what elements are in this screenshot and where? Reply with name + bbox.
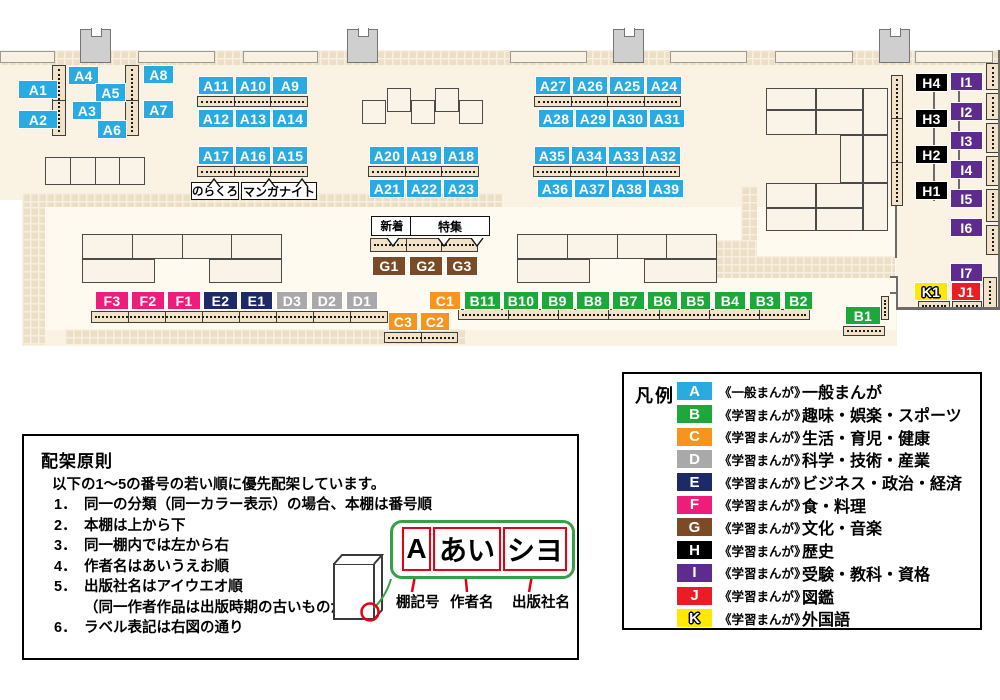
shelving-rule-note: （同一作者作品は出版時期の古いものが先） bbox=[54, 598, 432, 619]
legend-item-h: H《学習まんが》歴史 bbox=[677, 539, 978, 562]
legend-chip-b: B bbox=[677, 405, 712, 423]
shelf-label-a38: A38 bbox=[611, 179, 647, 198]
legend-series: 《学習まんが》 bbox=[719, 541, 802, 560]
shelving-rule: 5．出版社名はアイウエオ順 bbox=[54, 577, 432, 598]
shelf-label-i4: I4 bbox=[950, 160, 983, 179]
shelf-label-a24: A24 bbox=[646, 76, 682, 95]
display-table bbox=[863, 135, 888, 183]
legend-item-k: K《学習まんが》外国語 bbox=[677, 607, 978, 630]
shelf-label-a16: A16 bbox=[235, 146, 271, 165]
shelf-label-b10: B10 bbox=[503, 291, 539, 310]
shelf-label-a2: A2 bbox=[18, 110, 58, 129]
legend-item-j: J《学習まんが》図鑑 bbox=[677, 584, 978, 607]
legend-items: A《一般まんが》一般まんがB《学習まんが》趣味・娯楽・スポーツC《学習まんが》生… bbox=[677, 380, 978, 630]
pillar bbox=[879, 29, 910, 63]
shelving-rule: 1．同一の分類（同一カラー表示）の場合、本棚は番号順 bbox=[54, 495, 432, 516]
legend-item-f: F《学習まんが》食・料理 bbox=[677, 493, 978, 516]
floor-map-page: { "colors": { "A": "#29abe2", "B": "#1ea… bbox=[0, 0, 1000, 700]
shelf-label-a36: A36 bbox=[537, 179, 573, 198]
legend-chip-g: G bbox=[677, 518, 712, 536]
wall-shelf bbox=[243, 51, 318, 63]
principles-box: 配架原則 以下の1～5の番号の若い順に優先配架しています。 1．同一の分類（同一… bbox=[22, 434, 579, 660]
shelf-label-f2: F2 bbox=[131, 291, 165, 310]
display-table bbox=[209, 259, 282, 283]
callout-pointer bbox=[262, 174, 276, 183]
shelf-label-f3: F3 bbox=[95, 291, 129, 310]
shelf-label-a15: A15 bbox=[272, 146, 308, 165]
legend-series: 《学習まんが》 bbox=[719, 495, 802, 514]
legend-chip-c: C bbox=[677, 428, 712, 446]
shelf-label-b11: B11 bbox=[464, 291, 501, 310]
legend-box: 凡例 A《一般まんが》一般まんがB《学習まんが》趣味・娯楽・スポーツC《学習まん… bbox=[622, 372, 982, 630]
display-table bbox=[411, 100, 435, 124]
display-table bbox=[517, 259, 590, 283]
shelf-label-a7: A7 bbox=[143, 100, 174, 119]
legend-category: 歴史 bbox=[802, 538, 834, 562]
callout-pointer bbox=[470, 234, 484, 243]
bookshelf bbox=[384, 332, 458, 343]
shelving-rule: 3．同一棚内では左から右 bbox=[54, 536, 432, 557]
shelf-label-a28: A28 bbox=[538, 109, 574, 128]
legend-chip-e: E bbox=[677, 473, 712, 491]
principles-title: 配架原則 bbox=[41, 447, 113, 472]
callout-pointer bbox=[437, 234, 451, 243]
legend-item-i: I《学習まんが》受験・教科・資格 bbox=[677, 562, 978, 585]
legend-item-a: A《一般まんが》一般まんが bbox=[677, 380, 978, 403]
caption-author: 作者名 bbox=[450, 591, 494, 612]
shelf-label-a12: A12 bbox=[198, 109, 234, 128]
legend-category: ビジネス・政治・経済 bbox=[802, 470, 962, 494]
shelf-label-a19: A19 bbox=[406, 146, 442, 165]
display-table bbox=[766, 88, 816, 110]
shelf-label-a31: A31 bbox=[649, 109, 685, 128]
bookshelf bbox=[197, 96, 308, 107]
display-table bbox=[816, 110, 863, 135]
legend-category: 生活・育児・健康 bbox=[802, 425, 930, 449]
legend-item-g: G《学習まんが》文化・音楽 bbox=[677, 516, 978, 539]
shelf-label-i2: I2 bbox=[950, 102, 983, 121]
shelf-label-d1: D1 bbox=[346, 291, 378, 310]
shelf-label-a1: A1 bbox=[18, 80, 58, 99]
shelf-label-e2: E2 bbox=[203, 291, 238, 310]
shelf-label-a30: A30 bbox=[612, 109, 648, 128]
wall-shelf bbox=[138, 51, 215, 63]
display-table bbox=[816, 88, 863, 110]
bookshelf bbox=[983, 277, 997, 308]
pillar bbox=[613, 29, 644, 63]
bookshelf bbox=[534, 96, 681, 107]
shelf-label-g2: G2 bbox=[409, 256, 443, 276]
legend-chip-k: K bbox=[677, 609, 712, 627]
floor-map: A1A4A8A5A3A7A2A6A11A10A9A12A13A14A17A16A… bbox=[0, 0, 1000, 360]
shelf-label-a26: A26 bbox=[572, 76, 608, 95]
shelf-label-a3: A3 bbox=[72, 101, 102, 120]
legend-series: 《学習まんが》 bbox=[719, 450, 802, 469]
shelf-label-a39: A39 bbox=[648, 179, 684, 198]
pillar bbox=[347, 29, 378, 63]
shelf-label-h1: H1 bbox=[915, 181, 948, 200]
display-table bbox=[863, 183, 888, 231]
legend-category: 食・料理 bbox=[802, 493, 866, 517]
principles-rules: 1．同一の分類（同一カラー表示）の場合、本棚は番号順2．本棚は上から下3．同一棚… bbox=[54, 495, 432, 639]
shelf-label-i3: I3 bbox=[950, 131, 983, 150]
shelf-label-b8: B8 bbox=[576, 291, 610, 310]
shelf-label-a34: A34 bbox=[571, 146, 607, 165]
shelf-label-b5: B5 bbox=[680, 291, 711, 310]
floor-area bbox=[0, 200, 22, 348]
carpet-band bbox=[741, 186, 757, 240]
wall-shelf bbox=[0, 51, 55, 63]
label-diagram-shelf-code: A bbox=[402, 527, 431, 571]
bookshelf bbox=[533, 166, 680, 177]
legend-item-c: C《学習まんが》生活・育児・健康 bbox=[677, 425, 978, 448]
shelf-label-i7: I7 bbox=[950, 263, 983, 282]
legend-category: 趣味・娯楽・スポーツ bbox=[802, 402, 962, 426]
display-table bbox=[816, 208, 863, 231]
shelf-label-k1: K1 bbox=[914, 282, 948, 301]
wall-line bbox=[896, 307, 1000, 310]
legend-chip-d: D bbox=[677, 450, 712, 468]
legend-chip-j: J bbox=[677, 587, 712, 605]
shelf-label-a27: A27 bbox=[535, 76, 571, 95]
shelf-label-a22: A22 bbox=[406, 179, 442, 198]
shelf-label-a10: A10 bbox=[235, 76, 271, 95]
legend-category: 外国語 bbox=[802, 606, 850, 630]
wall-line bbox=[890, 292, 898, 294]
legend-item-d: D《学習まんが》科学・技術・産業 bbox=[677, 448, 978, 471]
shelf-label-a20: A20 bbox=[369, 146, 405, 165]
shelf-label-b6: B6 bbox=[647, 291, 678, 310]
shelf-label-h4: H4 bbox=[915, 73, 948, 92]
display-table bbox=[82, 234, 282, 259]
shelf-label-a33: A33 bbox=[608, 146, 644, 165]
legend-category: 図鑑 bbox=[802, 584, 834, 608]
shelf-label-a14: A14 bbox=[272, 109, 308, 128]
shelf-label-b2: B2 bbox=[784, 291, 813, 310]
wall-shelf bbox=[510, 51, 587, 63]
shelf-label-g3: G3 bbox=[446, 256, 478, 276]
legend-category: 文化・音楽 bbox=[802, 515, 882, 539]
wall-shelf bbox=[915, 51, 993, 63]
bookshelf bbox=[891, 75, 903, 206]
display-table bbox=[816, 183, 863, 208]
shelf-label-a17: A17 bbox=[198, 146, 234, 165]
display-table bbox=[840, 135, 863, 183]
callout-pointer bbox=[295, 174, 309, 183]
pillar bbox=[80, 29, 111, 63]
display-table bbox=[766, 110, 816, 135]
shelf-label-a23: A23 bbox=[443, 179, 479, 198]
shelf-label-c1: C1 bbox=[429, 291, 461, 310]
shelf-label-a18: A18 bbox=[443, 146, 479, 165]
legend-chip-a: A bbox=[677, 382, 712, 400]
shelf-label-h3: H3 bbox=[915, 109, 948, 128]
shelf-label-c2: C2 bbox=[420, 312, 450, 331]
shelving-rule: 6．ラベル表記は右図の通り bbox=[54, 618, 432, 639]
shelf-label-b4: B4 bbox=[714, 291, 746, 310]
bookshelf bbox=[843, 326, 885, 336]
bookshelf bbox=[368, 166, 479, 177]
display-table bbox=[362, 100, 386, 124]
callout-特集: 特集 bbox=[410, 216, 490, 236]
display-table bbox=[45, 157, 145, 185]
wall-line bbox=[890, 276, 898, 278]
legend-series: 《学習まんが》 bbox=[719, 563, 802, 582]
display-table bbox=[435, 88, 459, 112]
display-table bbox=[387, 88, 411, 112]
shelf-label-a35: A35 bbox=[534, 146, 570, 165]
shelving-rule: 4．作者名はあいうえお順 bbox=[54, 557, 432, 578]
shelf-label-b7: B7 bbox=[612, 291, 645, 310]
legend-series: 《学習まんが》 bbox=[719, 427, 802, 446]
legend-category: 科学・技術・産業 bbox=[802, 447, 930, 471]
caption-publisher: 出版社名 bbox=[512, 591, 570, 612]
shelf-label-i1: I1 bbox=[950, 72, 983, 91]
legend-category: 一般まんが bbox=[802, 379, 882, 403]
display-table bbox=[863, 88, 888, 135]
display-table bbox=[459, 100, 483, 124]
shelf-label-a13: A13 bbox=[235, 109, 271, 128]
wall-shelf bbox=[670, 51, 747, 63]
principles-intro: 以下の1～5の番号の若い順に優先配架しています。 bbox=[52, 473, 385, 494]
shelf-label-a21: A21 bbox=[369, 179, 405, 198]
callout-新着: 新着 bbox=[371, 216, 413, 236]
shelf-label-d2: D2 bbox=[311, 291, 343, 310]
shelf-label-c3: C3 bbox=[388, 312, 418, 331]
legend-chip-i: I bbox=[677, 564, 712, 582]
shelf-label-a32: A32 bbox=[645, 146, 681, 165]
bookshelf bbox=[125, 65, 139, 136]
shelf-label-h2: H2 bbox=[915, 145, 948, 164]
shelf-label-g1: G1 bbox=[372, 256, 406, 276]
shelf-label-a6: A6 bbox=[97, 120, 127, 139]
legend-item-e: E《学習まんが》ビジネス・政治・経済 bbox=[677, 471, 978, 494]
floor-area bbox=[897, 310, 1000, 348]
display-table bbox=[766, 183, 816, 208]
legend-series: 《学習まんが》 bbox=[719, 473, 802, 492]
shelf-label-i5: I5 bbox=[950, 189, 983, 208]
legend-chip-f: F bbox=[677, 496, 712, 514]
shelf-label-a11: A11 bbox=[198, 76, 234, 95]
shelf-label-a29: A29 bbox=[575, 109, 611, 128]
wall-line bbox=[895, 206, 897, 258]
display-table bbox=[766, 208, 816, 231]
legend-series: 《学習まんが》 bbox=[719, 405, 802, 424]
shelf-label-j1: J1 bbox=[951, 282, 981, 301]
shelf-label-d3: D3 bbox=[276, 291, 308, 310]
legend-series: 《学習まんが》 bbox=[719, 518, 802, 537]
shelving-rule: 2．本棚は上から下 bbox=[54, 516, 432, 537]
legend-title: 凡例 bbox=[635, 382, 675, 408]
shelf-label-i6: I6 bbox=[950, 218, 983, 237]
shelf-label-b9: B9 bbox=[541, 291, 574, 310]
legend-series: 《学習まんが》 bbox=[719, 586, 802, 605]
legend-series: 《学習まんが》 bbox=[719, 609, 802, 628]
bookshelf bbox=[881, 296, 889, 320]
shelf-label-f1: F1 bbox=[167, 291, 201, 310]
legend-chip-h: H bbox=[677, 541, 712, 559]
display-table bbox=[517, 234, 717, 259]
shelf-label-a9: A9 bbox=[272, 76, 308, 95]
label-diagram-publisher: シヨ bbox=[503, 527, 567, 571]
label-diagram: A あい シヨ bbox=[390, 520, 575, 579]
carpet-band bbox=[22, 207, 45, 345]
shelf-label-a8: A8 bbox=[143, 65, 174, 84]
bookshelf bbox=[91, 311, 388, 323]
shelf-label-a37: A37 bbox=[574, 179, 610, 198]
shelf-label-b1: B1 bbox=[845, 306, 881, 325]
caption-shelf-code: 棚記号 bbox=[396, 591, 440, 612]
bookshelf bbox=[458, 309, 810, 320]
wall-shelf bbox=[775, 51, 853, 63]
display-table bbox=[644, 259, 717, 283]
callout-pointer bbox=[386, 234, 400, 243]
legend-series: 《一般まんが》 bbox=[719, 382, 802, 401]
legend-item-b: B《学習まんが》趣味・娯楽・スポーツ bbox=[677, 403, 978, 426]
shelf-label-a5: A5 bbox=[95, 83, 126, 102]
shelf-label-e1: E1 bbox=[240, 291, 273, 310]
display-table bbox=[82, 259, 155, 283]
shelf-label-a25: A25 bbox=[609, 76, 645, 95]
callout-pointer bbox=[207, 174, 221, 183]
legend-category: 受験・教科・資格 bbox=[802, 561, 930, 585]
label-diagram-author: あい bbox=[433, 527, 501, 571]
shelf-label-b3: B3 bbox=[749, 291, 781, 310]
